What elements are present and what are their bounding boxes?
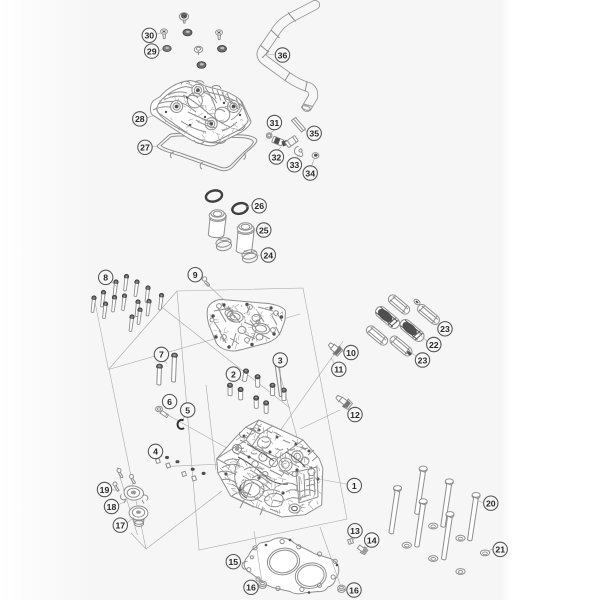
svg-text:22: 22 [429,340,439,350]
svg-text:28: 28 [135,114,145,124]
svg-text:3: 3 [278,355,283,365]
svg-text:35: 35 [309,129,319,139]
svg-text:10: 10 [346,348,356,358]
svg-text:2: 2 [231,369,236,379]
svg-text:33: 33 [290,160,300,170]
svg-text:32: 32 [272,152,282,162]
svg-text:23: 23 [440,324,450,334]
svg-text:16: 16 [349,585,359,595]
svg-text:30: 30 [144,31,154,41]
svg-text:11: 11 [334,365,343,375]
svg-text:4: 4 [153,447,158,457]
svg-text:12: 12 [350,410,360,420]
svg-text:27: 27 [140,143,150,153]
svg-text:14: 14 [367,535,377,545]
svg-text:7: 7 [159,350,164,360]
svg-text:15: 15 [228,557,238,567]
svg-text:18: 18 [107,502,117,512]
svg-text:24: 24 [263,250,273,260]
svg-text:23: 23 [418,355,428,365]
svg-text:1: 1 [352,481,357,491]
svg-text:5: 5 [185,405,190,415]
svg-text:36: 36 [278,50,288,60]
svg-text:29: 29 [147,46,157,56]
svg-text:6: 6 [167,397,172,407]
svg-text:16: 16 [246,583,256,593]
svg-text:19: 19 [100,485,110,495]
svg-text:8: 8 [103,273,108,283]
svg-text:13: 13 [350,526,360,536]
svg-text:9: 9 [193,270,198,280]
svg-text:20: 20 [486,499,496,509]
svg-text:25: 25 [259,225,269,235]
svg-text:26: 26 [254,201,264,211]
svg-text:17: 17 [115,521,125,531]
svg-text:31: 31 [270,118,280,128]
svg-text:21: 21 [495,545,505,555]
svg-text:34: 34 [305,168,315,178]
